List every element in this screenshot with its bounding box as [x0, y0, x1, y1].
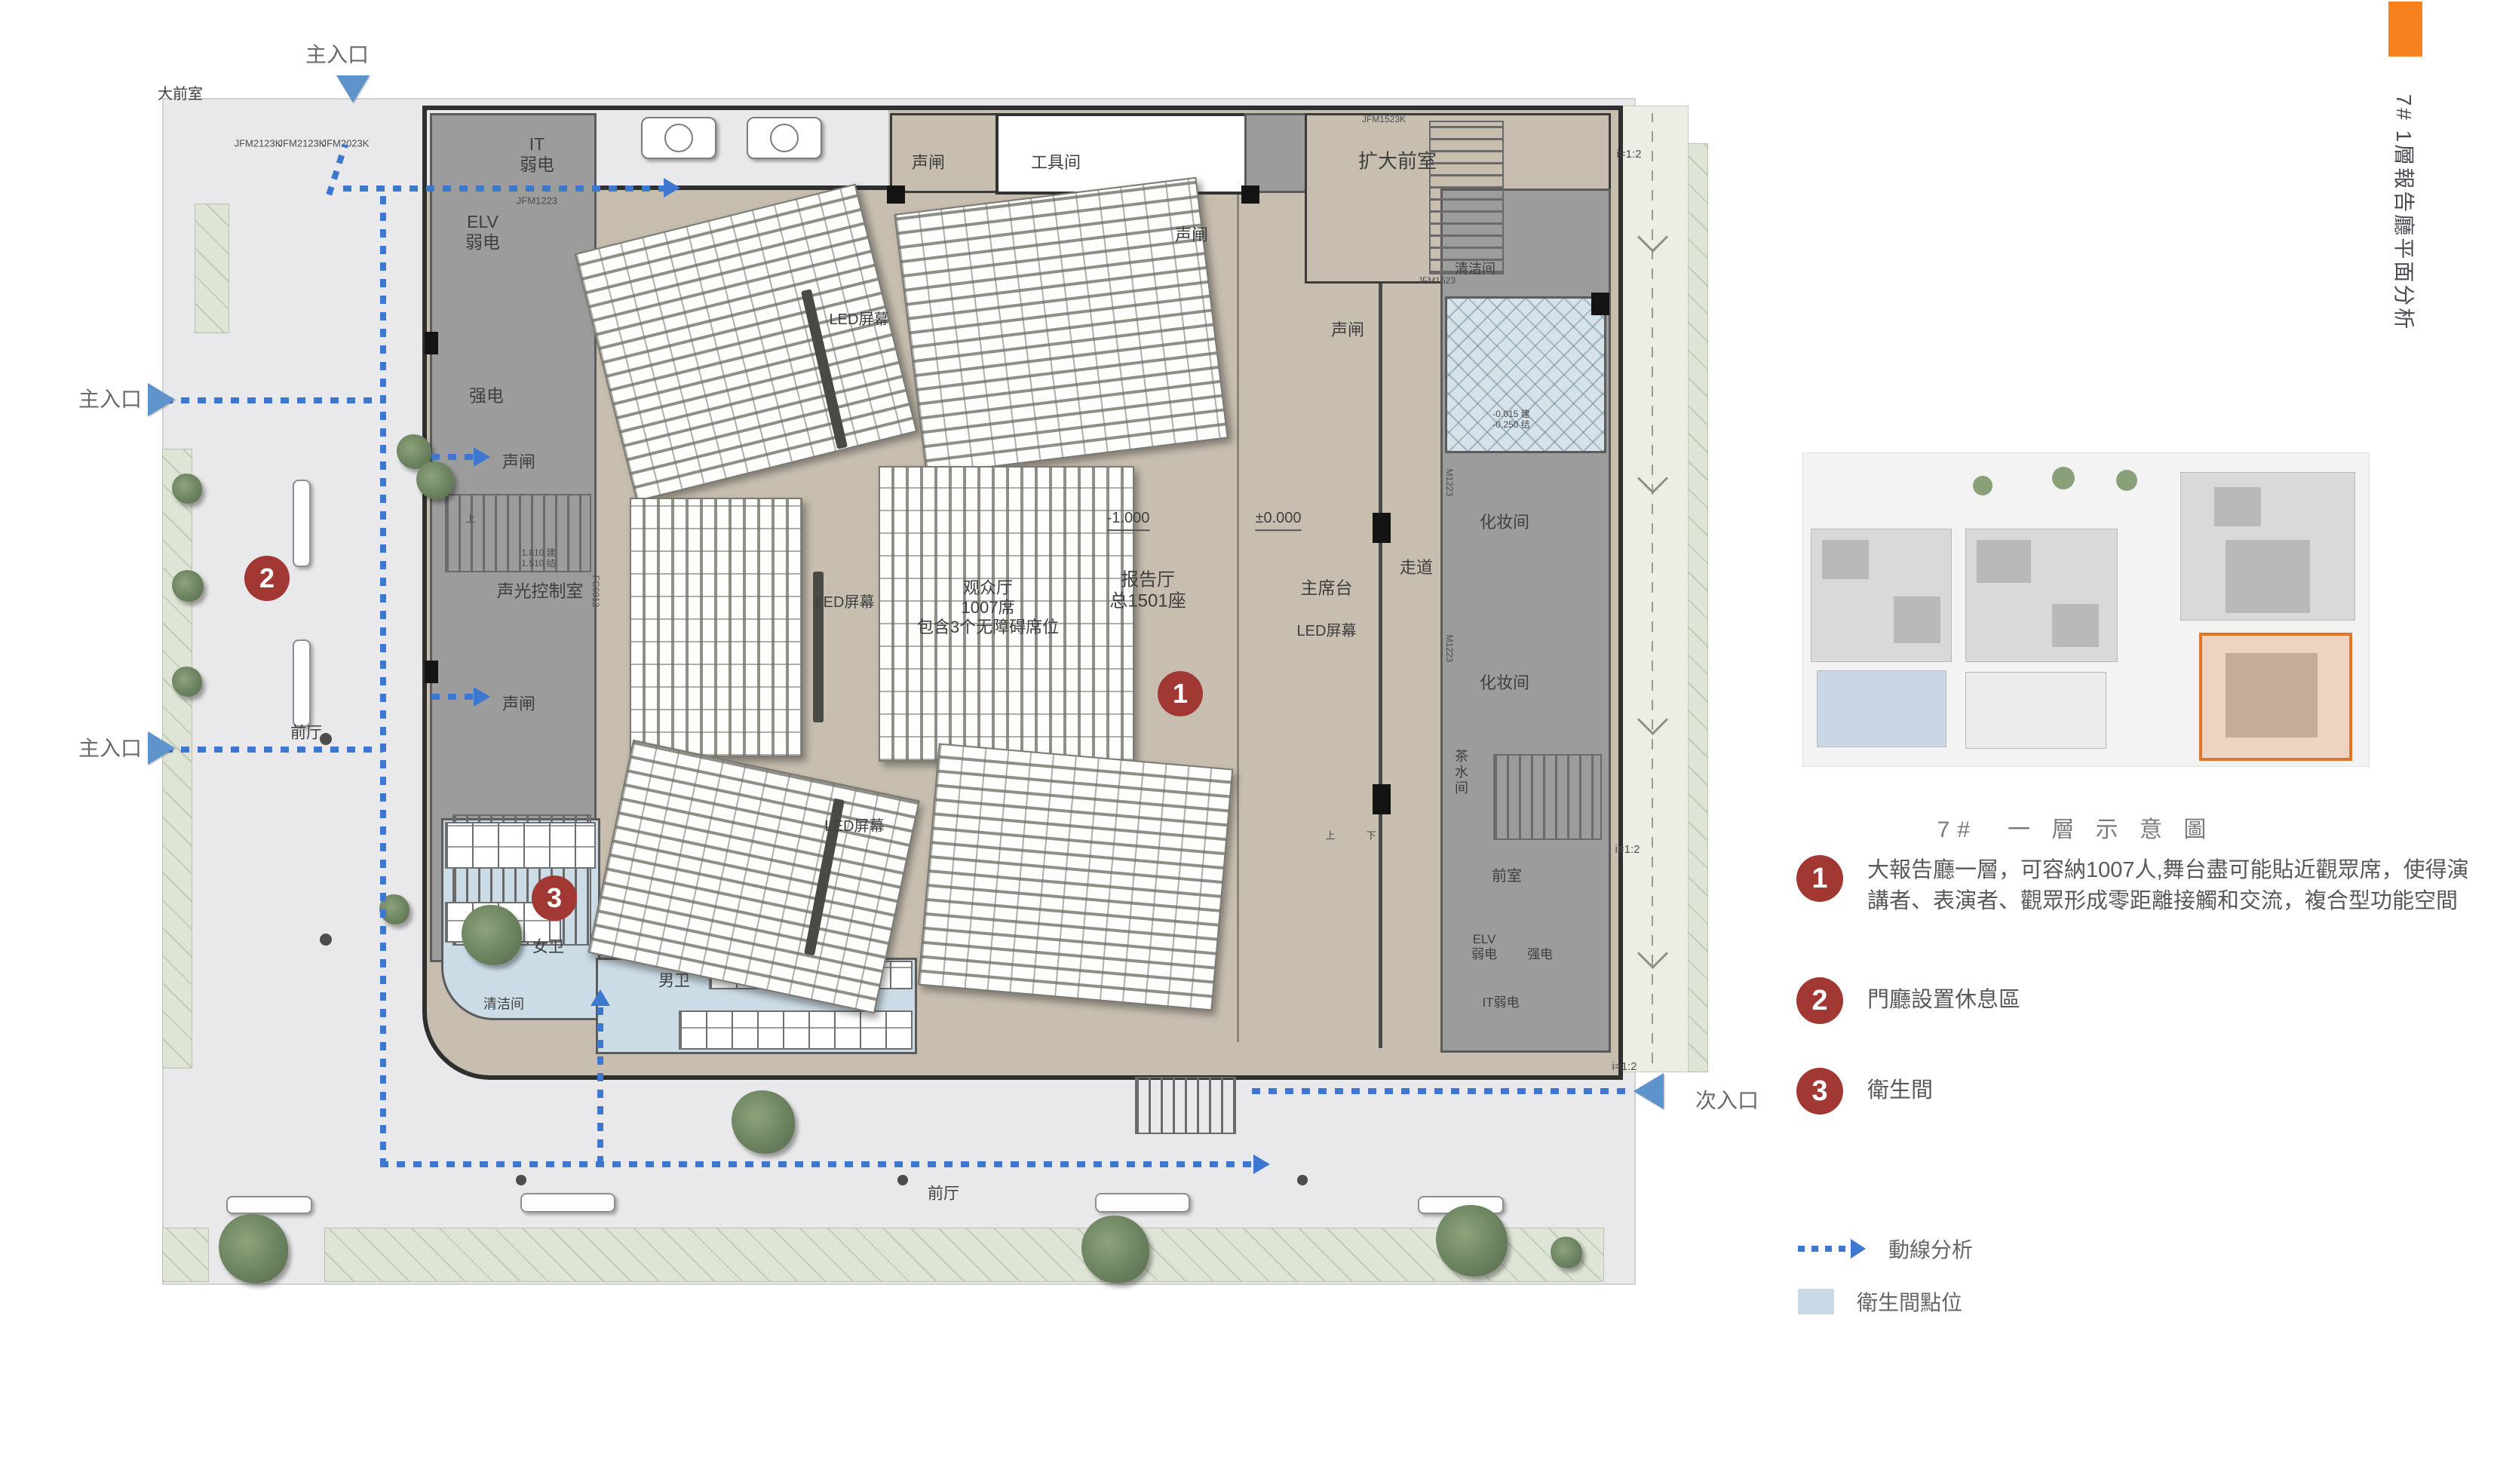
circulation-arrow: [474, 447, 490, 467]
main-entrance-arrow-left-2: [148, 731, 175, 765]
main-entrance-label-top: 主入口: [305, 38, 369, 69]
room-label: 前厅: [928, 1185, 959, 1204]
circulation-arrow: [591, 989, 610, 1006]
room-label: 上: [1325, 829, 1335, 841]
room-label: 化妆间: [1480, 513, 1529, 532]
room-label: JFM2123K: [235, 137, 282, 149]
room-label: 上: [465, 513, 475, 524]
room-label: 观众厅 1007席 包含3个无障碍席位: [917, 578, 1059, 637]
room-label: 强电: [469, 385, 504, 406]
minimap-highlight-box: [2199, 633, 2352, 761]
note-marker-1: 1: [1796, 855, 1843, 902]
legend-item-wc: 衛生間點位: [1798, 1286, 1962, 1317]
callout-marker-2: 2: [244, 556, 290, 601]
note-item-3: 3 衛生間: [1796, 1068, 2471, 1115]
legend-item-circulation: 動線分析: [1798, 1234, 1973, 1264]
callout-marker-1: 1: [1158, 671, 1203, 716]
room-label: LED屏幕: [815, 594, 875, 612]
room-label: 茶 水 间: [1455, 749, 1468, 797]
callout-marker-3: 3: [532, 875, 577, 921]
car: [747, 117, 822, 159]
circulation-arrow: [664, 178, 680, 198]
room-label: LED屏幕: [1297, 623, 1357, 641]
minimap-caption: 7# 一 層 示 意 圖: [1937, 811, 2214, 844]
room-label: JFM1523: [1418, 275, 1456, 286]
note-marker-3: 3: [1796, 1068, 1843, 1115]
room-label: 前室: [1492, 868, 1522, 886]
planting-strip-bottom-left: [162, 1228, 209, 1282]
room-label: 声闸: [502, 452, 535, 472]
ramp-dash-line: [1652, 113, 1653, 1063]
circulation-line: [1252, 1088, 1629, 1094]
room-label: 声光控制室: [497, 581, 584, 601]
room-label: 大前室: [158, 86, 203, 104]
room-label: 清洁间: [1455, 261, 1495, 277]
orange-tab: [2388, 2, 2422, 57]
room-label: LED屏幕: [830, 311, 889, 330]
room-shaft-top: [1244, 113, 1309, 193]
room-label: JFM1523K: [1362, 114, 1406, 124]
room-label: i=1:2: [1612, 1060, 1637, 1074]
room-label: ELV 弱电: [465, 212, 500, 253]
main-entrance-arrow-left-1: [148, 383, 175, 416]
room-label: 下: [1366, 829, 1376, 841]
room-label: 走道: [1400, 558, 1433, 578]
legend-label-wc: 衛生間點位: [1857, 1286, 1962, 1317]
circulation-line: [431, 694, 474, 700]
stair: [1429, 121, 1504, 274]
room-label: 声闸: [502, 694, 535, 714]
wc-fixtures: [445, 822, 596, 869]
room-label: i=1:2: [1615, 843, 1640, 857]
room-label: 主席台: [1301, 578, 1353, 598]
main-entrance-label-left-1: 主入口: [78, 383, 142, 413]
room-label: 声闸: [1175, 225, 1208, 245]
room-label: M1223: [1444, 635, 1455, 663]
room-label: LED屏幕: [825, 818, 885, 836]
room-label: M1223: [1444, 469, 1455, 497]
room-label: 强电: [1527, 947, 1553, 962]
circulation-line: [431, 454, 474, 460]
room-label: -1.000: [1107, 510, 1150, 531]
circulation-line: [164, 747, 383, 753]
exterior-stair: [1135, 1077, 1236, 1134]
room-label: 声闸: [912, 153, 945, 173]
car: [641, 117, 716, 159]
room-label: JFM2123K: [278, 137, 326, 149]
room-label: ELV 弱电: [1471, 932, 1497, 962]
circulation-line: [380, 1161, 1253, 1167]
page-title-vertical: 7# 1層報告廳平面分析: [2390, 94, 2420, 332]
legend-label-circulation: 動線分析: [1888, 1234, 1973, 1264]
corridor-wall: [1379, 189, 1382, 1048]
overview-minimap: [1802, 452, 2370, 767]
room-label: 女卫: [532, 939, 564, 958]
stage-edge: [1237, 190, 1239, 1042]
room-label: FC6012: [591, 575, 601, 608]
room-label: 1.810 建 1.510 结: [521, 547, 555, 569]
room-label: 前厅: [290, 725, 322, 744]
planting-strip-right: [1687, 143, 1708, 1072]
stair: [1493, 754, 1602, 840]
room-label: 男卫: [658, 973, 690, 992]
circulation-line: [343, 185, 664, 192]
circulation-arrow: [1253, 1154, 1270, 1174]
room-label: 报告厅 总1501座: [1109, 570, 1186, 613]
note-text-1: 大報告廳一層，可容納1007人,舞台盡可能貼近觀眾席，使得演講者、表演者、觀眾形…: [1867, 855, 2471, 917]
circulation-arrow: [474, 687, 490, 707]
room-label: 工具间: [1031, 153, 1081, 173]
room-label: -0.015 建 -0.250 结: [1492, 409, 1529, 430]
seating-block-mid-left: [630, 498, 802, 757]
stair: [445, 494, 591, 572]
secondary-entrance-label: 次入口: [1695, 1084, 1759, 1115]
room-label: JFM1223: [517, 195, 557, 206]
wc-legend-swatch: [1798, 1289, 1834, 1314]
circulation-legend-icon: [1798, 1246, 1851, 1252]
room-label: 化妆间: [1480, 673, 1529, 693]
circulation-line: [597, 1007, 603, 1164]
planting-strip-top-left: [195, 204, 229, 333]
note-item-1: 1 大報告廳一層，可容納1007人,舞台盡可能貼近觀眾席，使得演講者、表演者、觀…: [1796, 855, 2471, 917]
secondary-entrance-arrow: [1634, 1073, 1664, 1109]
wc-fixtures: [679, 1010, 913, 1050]
note-text-3: 衛生間: [1867, 1075, 2471, 1106]
planting-strip-bottom: [324, 1228, 1604, 1282]
main-entrance-label-left-2: 主入口: [78, 732, 142, 762]
seating-block-lower-center: [918, 744, 1234, 1011]
room-label: ±0.000: [1255, 510, 1301, 531]
note-item-2: 2 門廳設置休息區: [1796, 977, 2471, 1024]
note-marker-2: 2: [1796, 977, 1843, 1024]
room-label: IT 弱电: [520, 134, 554, 175]
room-label: 清洁间: [483, 996, 524, 1012]
room-label: IT弱电: [1482, 995, 1519, 1010]
note-text-2: 門廳設置休息區: [1867, 985, 2471, 1016]
room-label: 声闸: [1331, 320, 1364, 340]
room-label: 扩大前室: [1358, 150, 1437, 173]
main-entrance-arrow-top: [336, 75, 370, 103]
room-label: i=1:2: [1617, 148, 1642, 161]
circulation-line: [380, 190, 386, 1167]
circulation-line: [164, 397, 383, 403]
seating-block-upper-right: [894, 177, 1229, 476]
